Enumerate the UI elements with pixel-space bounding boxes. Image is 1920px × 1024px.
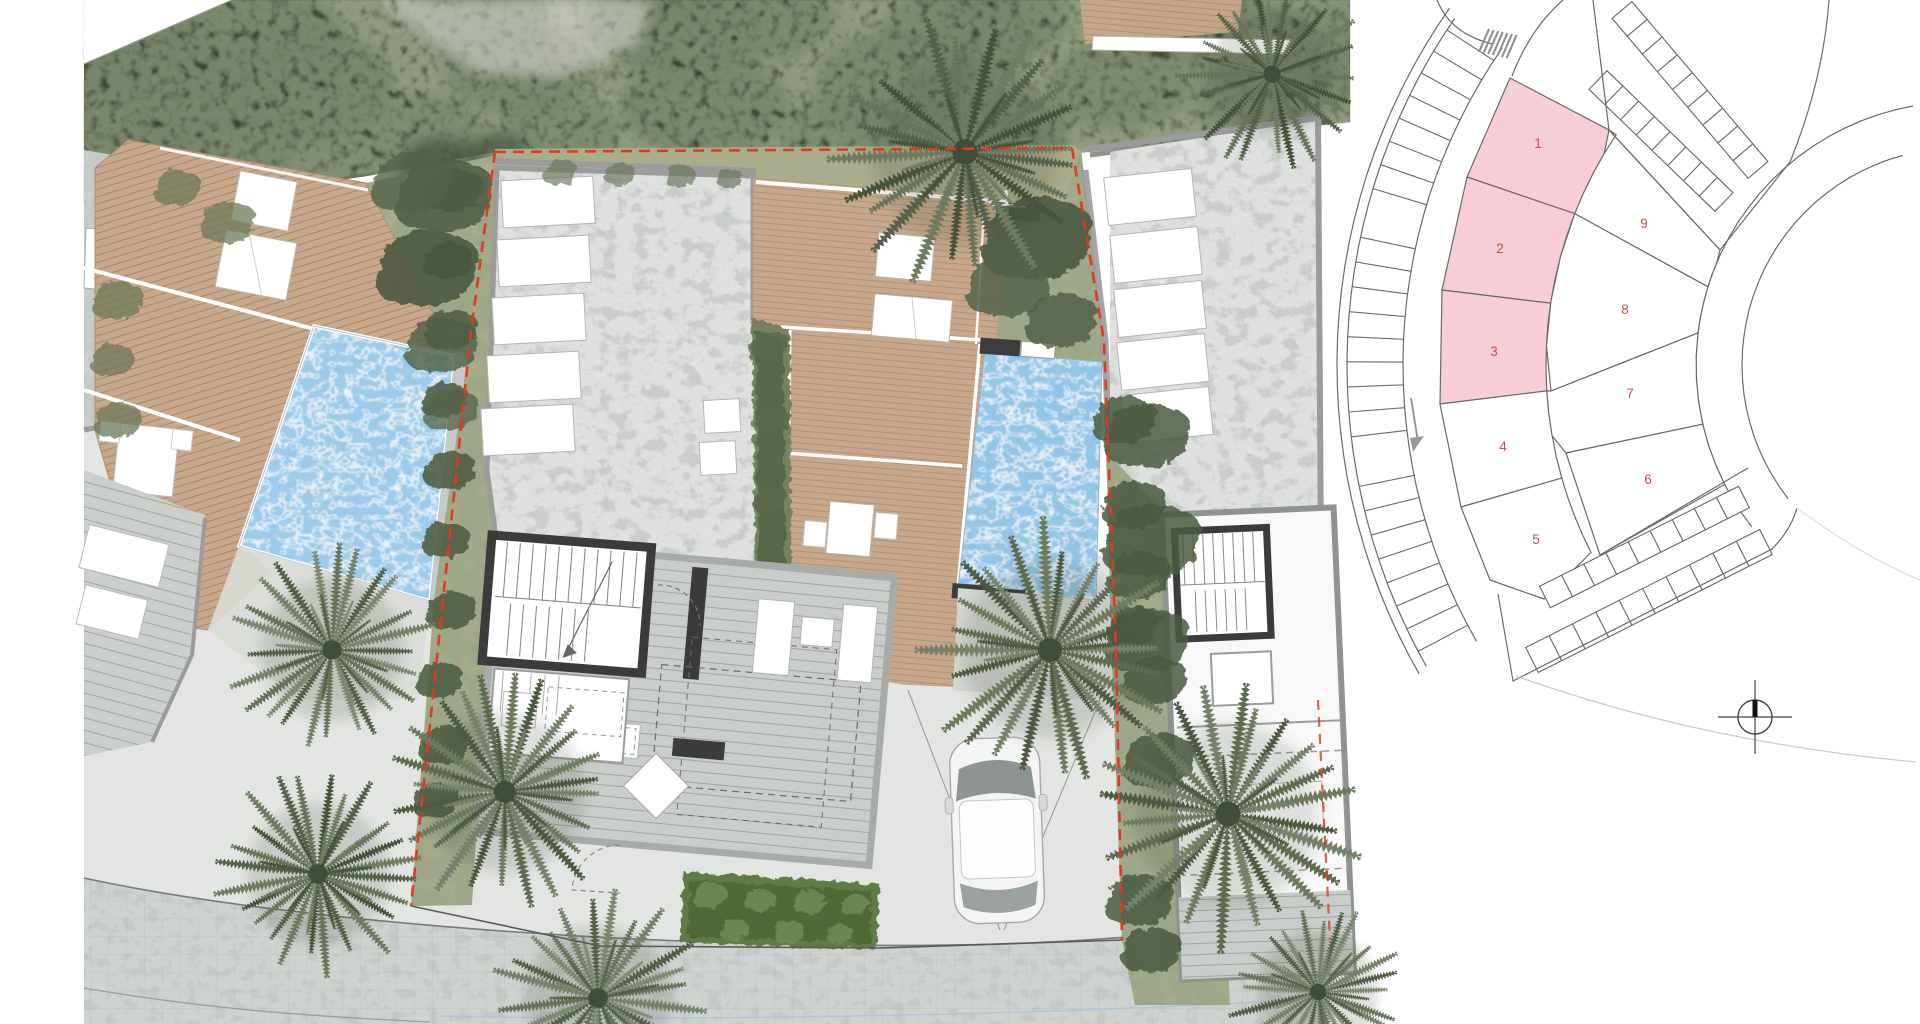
svg-text:4: 4 (1499, 439, 1507, 454)
svg-text:2: 2 (1496, 241, 1504, 256)
svg-text:5: 5 (1532, 532, 1540, 547)
svg-text:1: 1 (1534, 136, 1542, 151)
svg-text:9: 9 (1640, 216, 1648, 231)
svg-text:3: 3 (1490, 344, 1498, 359)
svg-text:8: 8 (1621, 302, 1629, 317)
svg-text:7: 7 (1626, 386, 1634, 401)
svg-text:6: 6 (1644, 472, 1652, 487)
